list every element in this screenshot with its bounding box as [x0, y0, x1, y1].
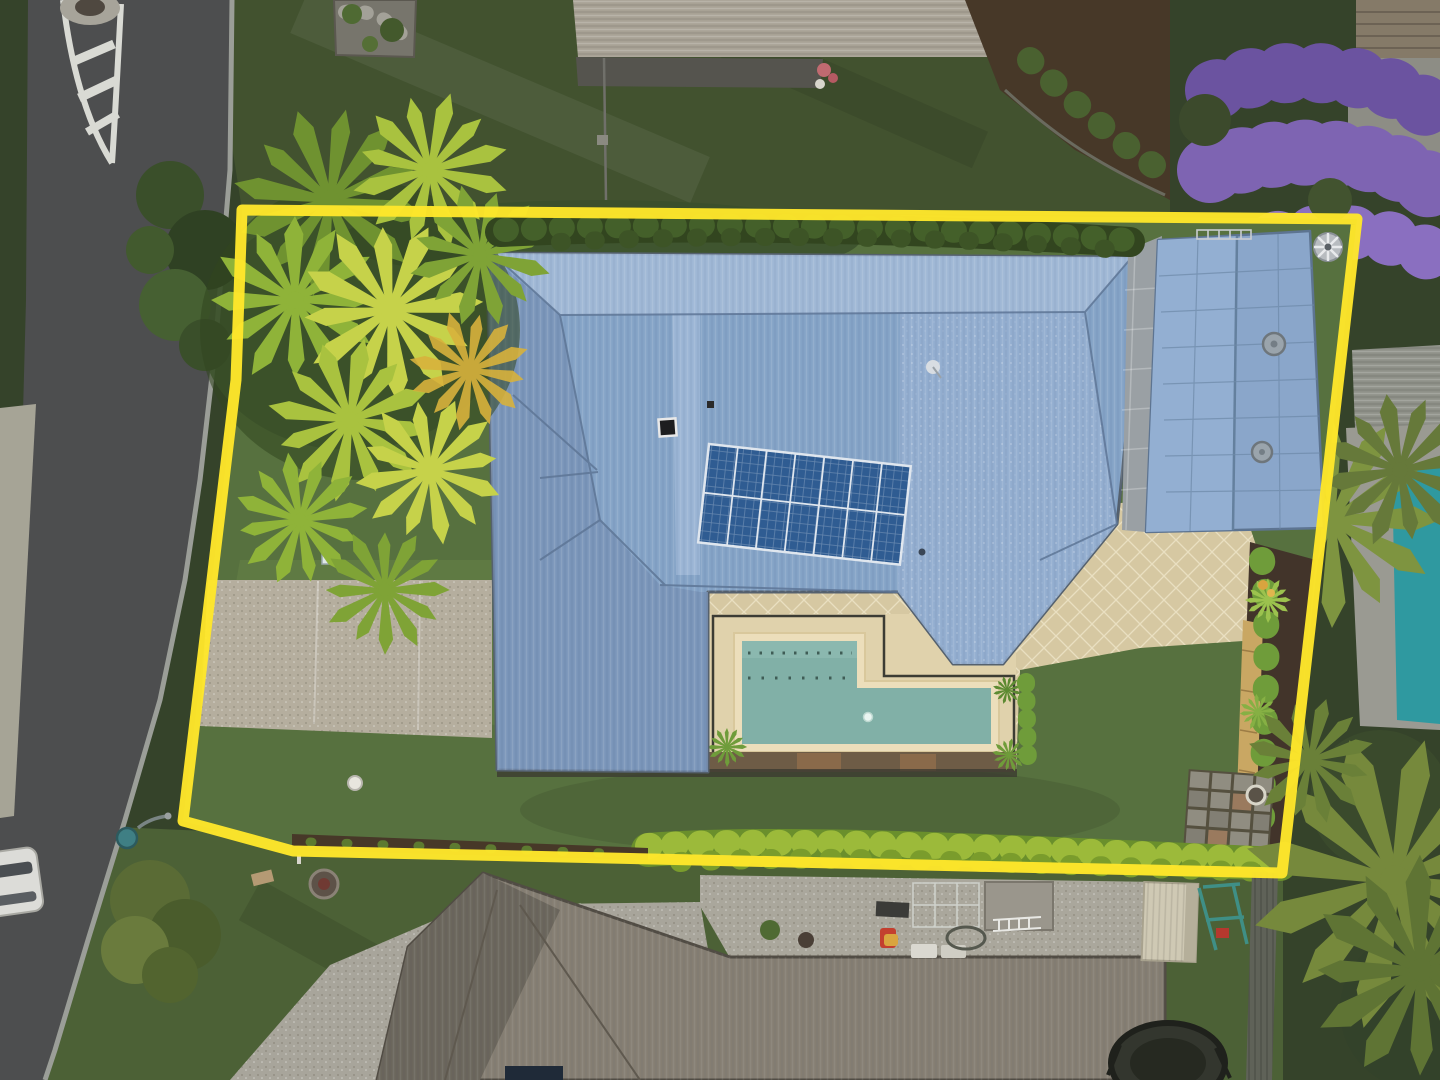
utility-box	[597, 135, 608, 145]
garage-studio	[1146, 230, 1324, 532]
timber-mat	[900, 754, 936, 771]
solar-panel-array	[698, 444, 911, 565]
paver-square-pad	[1183, 769, 1274, 851]
parked-car	[0, 846, 44, 917]
neighbor-solar-panel	[505, 1066, 563, 1080]
planter-pot	[1247, 786, 1265, 804]
driveway	[200, 580, 492, 738]
roof-penetration	[919, 549, 926, 556]
storage-box	[911, 944, 937, 958]
rock-garden-bed	[334, 0, 416, 57]
top-neighbor-patio-shadow	[576, 57, 823, 88]
pot-plant	[798, 932, 814, 948]
bbq-table	[876, 901, 910, 918]
pool-light	[864, 713, 873, 722]
whirlybird-vent	[1314, 233, 1342, 261]
planter-pot	[815, 79, 825, 89]
flowers	[1258, 580, 1268, 590]
aerial-photo	[0, 0, 1440, 1080]
swing-seat	[1216, 928, 1229, 938]
shrub	[342, 4, 362, 24]
roof-vent	[707, 401, 714, 408]
flower-bush	[817, 63, 831, 77]
pool-shallow-step	[742, 641, 857, 658]
skylight	[658, 418, 676, 436]
street-light-head	[117, 828, 137, 848]
aerial-photo-canvas	[0, 0, 1440, 1080]
timber-mat	[797, 753, 841, 770]
water-meter-lid	[348, 776, 362, 790]
